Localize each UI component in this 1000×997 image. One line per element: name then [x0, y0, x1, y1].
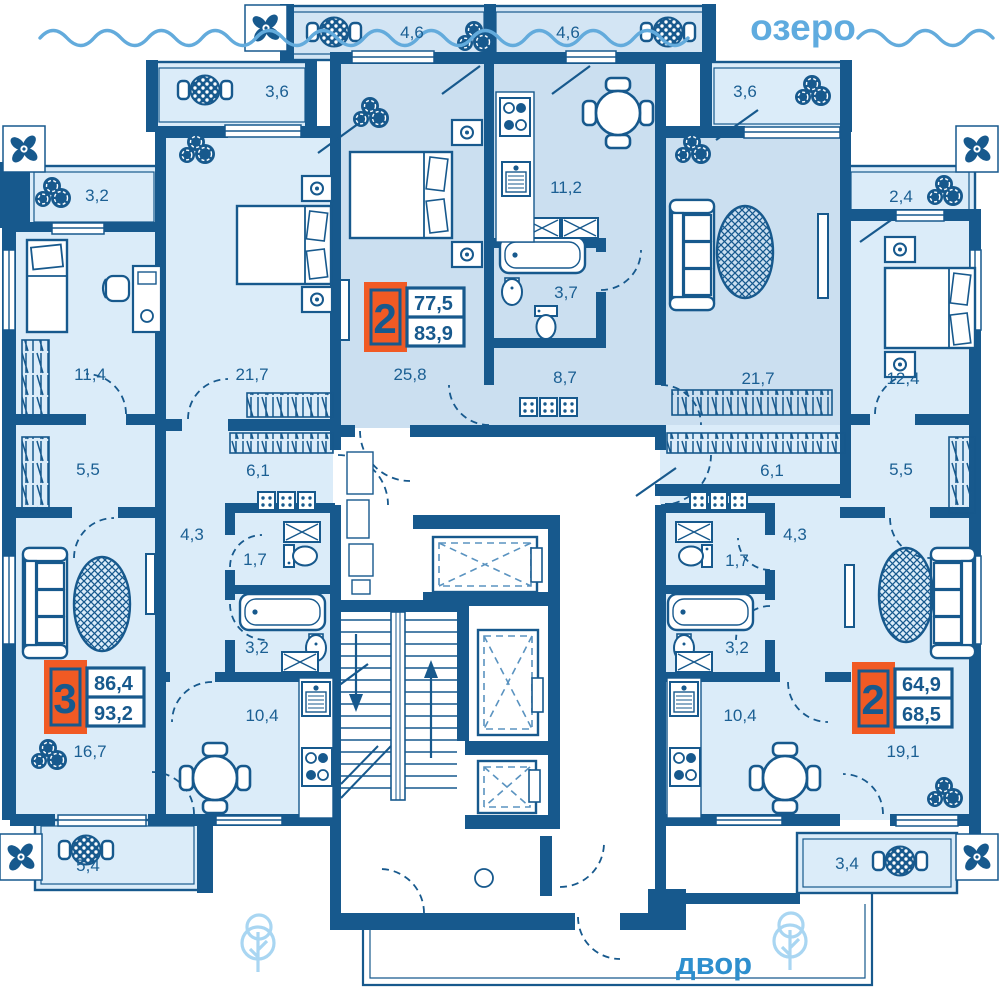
- elevator-2: [478, 630, 543, 735]
- room-label: 16,7: [73, 742, 106, 761]
- apartment-badge-left[interactable]: 3 86,4 93,2: [44, 660, 144, 734]
- badge-rooms: 2: [861, 676, 884, 723]
- desk-chair: [103, 276, 129, 301]
- room-label: 25,8: [393, 365, 426, 384]
- room-label: 3,7: [554, 283, 578, 302]
- sofa-right-living: [931, 548, 975, 658]
- bathtub-left: [240, 594, 325, 630]
- washer: [676, 522, 712, 542]
- room-label: 3,2: [725, 638, 749, 657]
- kitchen-counter-right: [667, 678, 701, 818]
- room-label: 4,6: [556, 23, 580, 42]
- sink-center: [502, 278, 522, 305]
- badge-total-area: 83,9: [414, 323, 453, 345]
- apartment-badge-right[interactable]: 2 64,9 68,5: [852, 662, 952, 734]
- sofa-center-living: [670, 200, 714, 310]
- fan-icon: [954, 834, 1000, 880]
- lobby-cabinets: [347, 452, 373, 594]
- room-label: 21,7: [235, 365, 268, 384]
- room-label: 1,7: [243, 550, 267, 569]
- room-label: 3,6: [265, 82, 289, 101]
- bed-single: [27, 240, 67, 332]
- room-label: 6,1: [246, 461, 270, 480]
- hall-cabinet: [258, 492, 315, 510]
- room-label: 8,7: [553, 368, 577, 387]
- bed-double-left: [237, 206, 331, 284]
- bed-double-center: [350, 152, 452, 238]
- nightstand: [302, 287, 332, 312]
- toilet-right: [679, 545, 712, 567]
- bed-double-right: [885, 268, 975, 348]
- room-label: 5,5: [76, 460, 100, 479]
- apartment-badge-center[interactable]: 2 77,5 83,9: [364, 282, 464, 352]
- nightstand: [885, 237, 915, 262]
- hall-cabinet: [520, 398, 577, 416]
- elevator-1: [433, 537, 542, 592]
- tv-unit: [340, 280, 349, 340]
- floor-plan-page: озеро двор 3,2 3,6 4,6 4,6 3,6 2,4 11,4 …: [0, 0, 1000, 997]
- room-label: 1,7: [725, 551, 749, 570]
- kitchen-counter-left: [299, 678, 333, 818]
- room-label: 10,4: [245, 706, 278, 725]
- tv-unit: [845, 565, 854, 627]
- fan-icon: [0, 834, 44, 880]
- room-label: 5,5: [889, 460, 913, 479]
- badge-rooms: 3: [53, 675, 76, 722]
- tree-icon: [774, 913, 806, 970]
- room-label: 21,7: [741, 369, 774, 388]
- room-label: 5,4: [76, 856, 100, 875]
- fan-icon: [954, 126, 1000, 172]
- badge-rooms: 2: [373, 295, 396, 342]
- room-label: 4,3: [783, 525, 807, 544]
- room-label: 3,2: [245, 638, 269, 657]
- elevator-3: [478, 761, 540, 813]
- toilet-left: [284, 545, 317, 567]
- floor-plan: озеро двор 3,2 3,6 4,6 4,6 3,6 2,4 11,4 …: [0, 0, 1000, 997]
- washer: [284, 522, 320, 542]
- washer: [676, 652, 712, 672]
- badge-living-area: 64,9: [902, 674, 941, 696]
- badge-living-area: 86,4: [94, 673, 134, 695]
- nightstand: [452, 120, 482, 145]
- washer: [562, 218, 598, 238]
- room-label: 3,2: [85, 186, 109, 205]
- fan-icon: [1, 126, 47, 172]
- room-label: 12,4: [886, 369, 919, 388]
- room-label: 2,4: [889, 187, 913, 206]
- desk: [133, 266, 161, 332]
- badge-total-area: 68,5: [902, 704, 941, 726]
- room-label: 11,4: [74, 365, 106, 384]
- tree-icon: [242, 915, 274, 972]
- rug-center: [717, 206, 773, 298]
- room-label: 4,6: [400, 23, 424, 42]
- room-label: 19,1: [886, 742, 919, 761]
- badge-living-area: 77,5: [414, 293, 453, 315]
- room-label: 10,4: [723, 706, 756, 725]
- bathtub-right: [668, 594, 753, 630]
- yard-label: двор: [676, 946, 752, 981]
- room-label: 3,6: [733, 82, 757, 101]
- tv-unit: [818, 214, 828, 298]
- rug-right: [879, 548, 933, 642]
- lake-label: озеро: [750, 7, 856, 48]
- room-label: 4,3: [180, 525, 204, 544]
- room-label: 3,4: [835, 854, 859, 873]
- hall-cabinet: [690, 492, 747, 510]
- badge-total-area: 93,2: [94, 703, 133, 725]
- kitchen-counter-center: [496, 92, 534, 242]
- tv-unit: [146, 554, 155, 614]
- sofa-left-living: [23, 548, 67, 658]
- room-label: 11,2: [550, 178, 582, 197]
- toilet-center: [535, 306, 557, 339]
- washer: [282, 652, 318, 672]
- rug-left: [74, 557, 130, 651]
- room-label: 6,1: [760, 461, 784, 480]
- water-wave-right: [858, 31, 993, 46]
- nightstand: [452, 242, 482, 267]
- nightstand: [302, 176, 332, 201]
